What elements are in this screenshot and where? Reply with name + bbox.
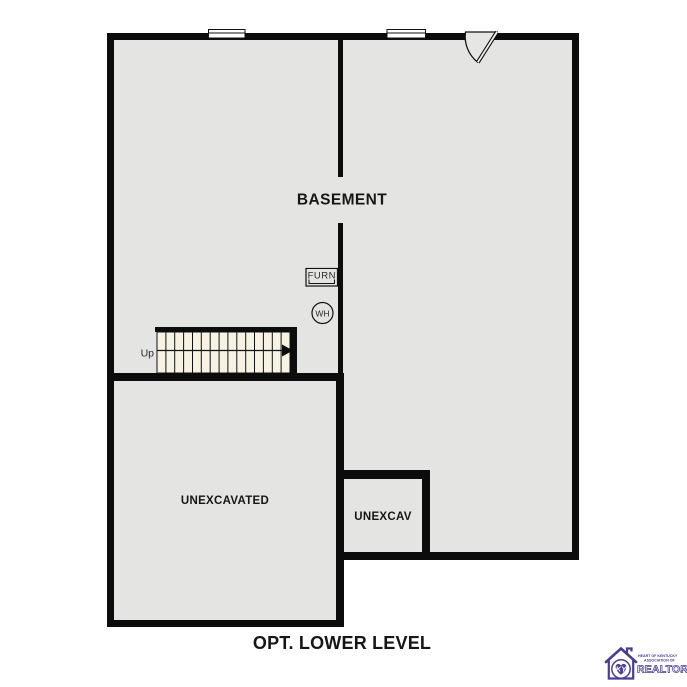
bottom-wall-right [336, 552, 579, 560]
floor-plan-canvas: Up FURN WH BASEMENT UNEXCAVATED UNEXCAV … [0, 0, 687, 687]
floor-plan-page: Up FURN WH BASEMENT UNEXCAVATED UNEXCAV … [0, 0, 687, 687]
stair-treads [157, 332, 290, 373]
house-heart-icon: KY [606, 649, 636, 679]
logo-org-line2: ASSOCIATION OF [644, 659, 675, 663]
logo-wordmark: HEART OF KENTUCKY ASSOCIATION OF REALTOR… [637, 654, 687, 676]
center-wall-lower [336, 373, 344, 627]
realtor-logo: KY HEART OF KENTUCKY ASSOCIATION OF REAL… [606, 649, 687, 679]
water-heater-label: WH [315, 309, 329, 319]
logo-org-line1: HEART OF KENTUCKY [638, 654, 678, 658]
unexcavated-room-label: UNEXCAVATED [181, 495, 269, 507]
stair-top-rail [155, 327, 297, 332]
logo-registered-mark: ® [680, 669, 683, 674]
unexcavated-bottom-wall [107, 620, 344, 627]
left-wall [107, 33, 114, 627]
unexcav-right-wall [422, 470, 430, 560]
stair-divider-wall [107, 373, 344, 381]
basement-room-label: BASEMENT [297, 192, 387, 209]
top-wall [107, 33, 579, 40]
up-label: Up [141, 348, 155, 360]
furnace-label: FURN [308, 271, 336, 282]
page-title: OPT. LOWER LEVEL [253, 633, 431, 653]
logo-monogram: KY [616, 665, 627, 674]
furnace-box: FURN [306, 269, 338, 287]
staircase: Up [141, 327, 297, 373]
unexcav-room-label: UNEXCAV [354, 511, 412, 523]
right-wall [572, 33, 579, 560]
window-icon-left [209, 30, 246, 39]
interior-wall-upper-segment [338, 40, 343, 177]
interior-wall-lower-segment [338, 223, 343, 373]
window-icon-right [387, 30, 426, 39]
unexcav-top-wall [336, 470, 430, 479]
